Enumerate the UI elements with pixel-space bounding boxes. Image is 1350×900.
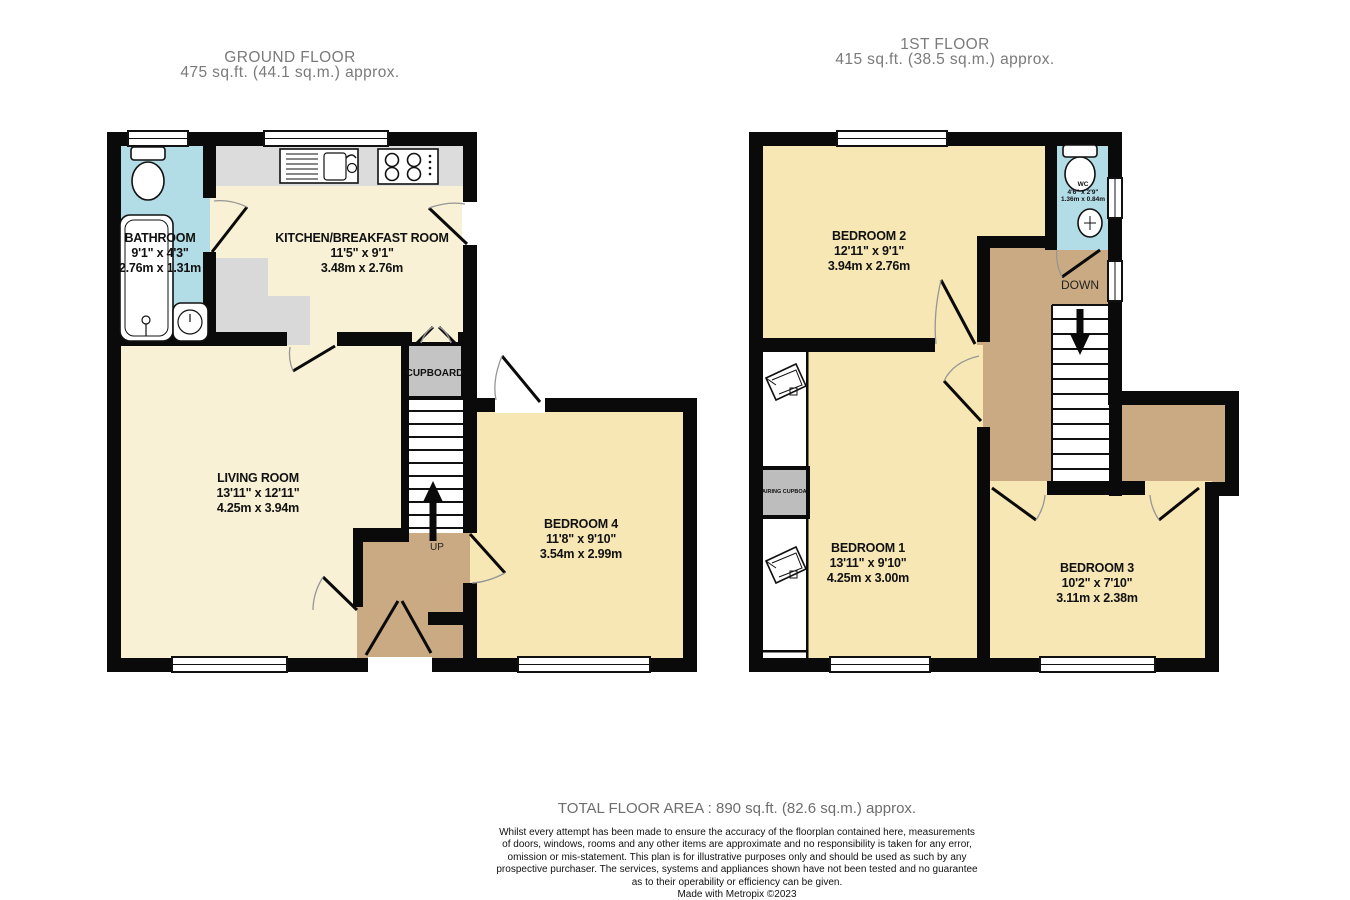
ground-floor-plan xyxy=(107,131,690,673)
total-floor-area: TOTAL FLOOR AREA : 890 sq.ft. (82.6 sq.m… xyxy=(437,800,1037,817)
disclaimer-line: omission or mis-statement. This plan is … xyxy=(437,852,1037,864)
down-label: DOWN xyxy=(1048,278,1112,292)
stove-icon xyxy=(378,149,438,184)
kitchen-sink-icon xyxy=(280,149,358,183)
first-floor-title-text: 1ST FLOOR xyxy=(790,37,1100,52)
toilet-icon xyxy=(131,147,165,200)
metropix-credit: Made with Metropix ©2023 xyxy=(437,889,1037,900)
room-label-bedroom2: BEDROOM 2 12'11" x 9'1" 3.94m x 2.76m xyxy=(769,229,969,274)
ground-floor-title-text: GROUND FLOOR xyxy=(140,50,440,65)
room-label-wc: WC 4'6" x 2'9" 1.36m x 0.84m xyxy=(1048,181,1118,204)
disclaimer-line: Whilst every attempt has been made to en… xyxy=(437,827,1037,839)
room-label-bathroom: BATHROOM 9'1" x 4'3" 2.76m x 1.31m xyxy=(90,231,230,276)
floorplan-page: GROUND FLOOR 475 sq.ft. (44.1 sq.m.) app… xyxy=(0,0,1350,900)
cupboard-label: CUPBOARD xyxy=(405,368,464,379)
room-label-bedroom3: BEDROOM 3 10'2" x 7'10" 3.11m x 2.38m xyxy=(997,561,1197,606)
room-label-bedroom4: BEDROOM 4 11'8" x 9'10" 3.54m x 2.99m xyxy=(481,517,681,562)
room-label-kitchen: KITCHEN/BREAKFAST ROOM 11'5" x 9'1" 3.48… xyxy=(262,231,462,276)
room-label-bedroom1: BEDROOM 1 13'11" x 9'10" 4.25m x 3.00m xyxy=(768,541,968,586)
footer: TOTAL FLOOR AREA : 890 sq.ft. (82.6 sq.m… xyxy=(437,800,1037,900)
floorplan-drawing xyxy=(0,0,1350,900)
disclaimer-line: prospective purchaser. The services, sys… xyxy=(437,864,1037,876)
wardrobe-icon xyxy=(766,364,806,400)
ground-floor-title: GROUND FLOOR 475 sq.ft. (44.1 sq.m.) app… xyxy=(140,50,440,80)
room-label-living-room: LIVING ROOM 13'11" x 12'11" 4.25m x 3.94… xyxy=(158,471,358,516)
airing-cupboard-label: AIRING CUPBOARD xyxy=(762,489,808,495)
first-floor-title: 1ST FLOOR 415 sq.ft. (38.5 sq.m.) approx… xyxy=(790,37,1100,67)
basin-icon xyxy=(173,303,208,341)
first-floor-area-text: 415 sq.ft. (38.5 sq.m.) approx. xyxy=(790,52,1100,67)
wc-basin-icon xyxy=(1078,209,1102,237)
disclaimer-line: of doors, windows, rooms and any other i… xyxy=(437,839,1037,851)
disclaimer-line: as to their operability or efficiency ca… xyxy=(437,877,1037,889)
up-label: UP xyxy=(417,542,457,553)
ground-floor-area-text: 475 sq.ft. (44.1 sq.m.) approx. xyxy=(140,65,440,80)
